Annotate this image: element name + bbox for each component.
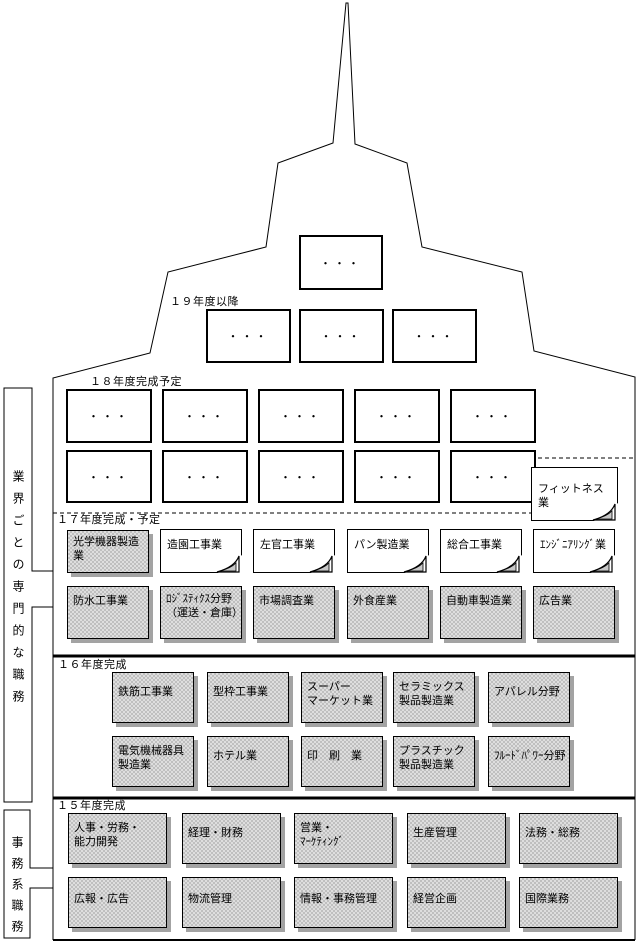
page-curl-icon <box>216 554 242 573</box>
box-label: 自動車製造業 <box>446 594 518 608</box>
placeholder-box-fy18-2: ・・・ <box>162 389 248 443</box>
placeholder-box-fy18-1: ・・・ <box>66 389 152 443</box>
placeholder-box-fy18-3: ・・・ <box>258 389 344 443</box>
placeholder-dots: ・・・ <box>228 328 270 344</box>
box-engineering: ｴﾝｼﾞﾆｱﾘﾝｸﾞ業 <box>533 529 615 573</box>
box-legal-general-affairs: 法務・総務 <box>519 813 618 864</box>
box-label: セラミックス 製品製造業 <box>399 680 471 708</box>
bracket-clerical-label: 事務系職務 <box>10 836 24 941</box>
placeholder-dots: ・・・ <box>88 469 130 485</box>
box-info-office-management: 情報・事務管理 <box>294 877 393 928</box>
box-waterproofing-construction: 防水工事業 <box>67 586 149 639</box>
box-label: 鉄筋工事業 <box>118 685 190 699</box>
box-general-construction: 総合工事業 <box>440 529 522 573</box>
box-label: 営業・ ﾏｰｹﾃｨﾝｸﾞ <box>300 821 389 849</box>
placeholder-box-fy18-9: ・・・ <box>354 450 440 503</box>
box-label: 防水工事業 <box>73 594 145 608</box>
box-plastering-construction: 左官工事業 <box>253 529 335 573</box>
box-ceramics-products-mfg: セラミックス 製品製造業 <box>393 672 475 723</box>
placeholder-box-fy19-top: ・・・ <box>299 235 383 290</box>
box-label: 情報・事務管理 <box>300 892 389 906</box>
box-label: 経営企画 <box>413 892 502 906</box>
placeholder-box-fy19-2: ・・・ <box>299 309 384 363</box>
box-label: 市場調査業 <box>259 594 331 608</box>
placeholder-dots: ・・・ <box>184 408 226 424</box>
section-label-fy15: １５年度完成 <box>57 800 126 812</box>
section-label-fy17: １７年度完成・予定 <box>57 514 161 526</box>
box-food-service: 外食産業 <box>347 586 429 639</box>
box-label: ホテル業 <box>213 749 285 763</box>
box-label: 外食産業 <box>353 594 425 608</box>
box-label: 左官工事業 <box>260 538 331 552</box>
box-fluid-power-field: ﾌﾙｰﾄﾞﾊﾟﾜｰ分野 <box>488 736 570 787</box>
page-curl-icon <box>592 502 618 521</box>
box-international-business: 国際業務 <box>519 877 618 928</box>
box-landscaping-construction: 造園工事業 <box>160 529 242 573</box>
box-label: 造園工事業 <box>167 538 238 552</box>
box-label: 国際業務 <box>525 892 614 906</box>
box-label: プラスチック 製品製造業 <box>399 744 471 772</box>
box-label: 総合工事業 <box>447 538 518 552</box>
box-label: 電気機械器具 製造業 <box>118 744 190 772</box>
box-label: ﾌﾙｰﾄﾞﾊﾟﾜｰ分野 <box>494 749 566 763</box>
bracket-industry-label: 業界ごとの専門的な職務 <box>11 470 25 712</box>
page-curl-icon <box>403 554 429 573</box>
box-automobile-mfg: 自動車製造業 <box>440 586 522 639</box>
box-label: 広告業 <box>539 594 611 608</box>
box-supermarket: スーパー マーケット業 <box>301 672 383 723</box>
placeholder-dots: ・・・ <box>414 328 456 344</box>
box-hr-labor-development: 人事・労務・ 能力開発 <box>68 813 167 864</box>
placeholder-dots: ・・・ <box>320 255 362 271</box>
placeholder-dots: ・・・ <box>280 469 322 485</box>
box-label: 型枠工事業 <box>213 685 285 699</box>
box-logistics-management: 物流管理 <box>182 877 281 928</box>
box-rebar-construction: 鉄筋工事業 <box>112 672 194 723</box>
box-label: スーパー マーケット業 <box>307 680 379 708</box>
placeholder-dots: ・・・ <box>376 408 418 424</box>
box-logistics-field: ﾛｼﾞｽﾃｨｸｽ分野 （運送・倉庫） <box>160 586 242 639</box>
box-production-management: 生産管理 <box>407 813 506 864</box>
placeholder-box-fy18-6: ・・・ <box>66 450 152 503</box>
box-label: 経理・財務 <box>188 826 277 840</box>
placeholder-dots: ・・・ <box>184 469 226 485</box>
placeholder-box-fy18-4: ・・・ <box>354 389 440 443</box>
placeholder-dots: ・・・ <box>88 408 130 424</box>
box-label: 印 刷 業 <box>307 749 379 763</box>
box-label: パン製造業 <box>354 538 425 552</box>
box-sales-marketing: 営業・ ﾏｰｹﾃｨﾝｸﾞ <box>294 813 393 864</box>
box-optical-equipment-mfg: 光学機器製造 業 <box>67 530 149 573</box>
box-pr-advertising: 広報・広告 <box>68 877 167 928</box>
box-label: 人事・労務・ 能力開発 <box>74 821 163 849</box>
placeholder-box-fy18-10: ・・・ <box>450 450 536 503</box>
placeholder-dots: ・・・ <box>321 328 363 344</box>
box-formwork-construction: 型枠工事業 <box>207 672 289 723</box>
box-printing: 印 刷 業 <box>301 736 383 787</box>
page-curl-icon <box>309 554 335 573</box>
placeholder-dots: ・・・ <box>280 408 322 424</box>
placeholder-dots: ・・・ <box>376 469 418 485</box>
page-curl-icon <box>496 554 522 573</box>
box-plastic-products-mfg: プラスチック 製品製造業 <box>393 736 475 787</box>
box-label: 物流管理 <box>188 892 277 906</box>
box-label: 法務・総務 <box>525 826 614 840</box>
box-label: アパレル分野 <box>494 685 566 699</box>
placeholder-dots: ・・・ <box>472 408 514 424</box>
box-label: 広報・広告 <box>74 892 163 906</box>
box-apparel-field: アパレル分野 <box>488 672 570 723</box>
box-advertising: 広告業 <box>533 586 615 639</box>
section-label-fy18: １８年度完成予定 <box>90 376 182 388</box>
box-fitness-industry: フィットネス業 <box>531 467 618 521</box>
placeholder-box-fy18-7: ・・・ <box>162 450 248 503</box>
box-bread-mfg: パン製造業 <box>347 529 429 573</box>
box-label: ﾛｼﾞｽﾃｨｸｽ分野 （運送・倉庫） <box>166 592 238 620</box>
placeholder-dots: ・・・ <box>472 469 514 485</box>
box-hotel: ホテル業 <box>207 736 289 787</box>
box-electrical-machinery-mfg: 電気機械器具 製造業 <box>112 736 194 787</box>
box-corporate-planning: 経営企画 <box>407 877 506 928</box>
box-label: 生産管理 <box>413 826 502 840</box>
section-label-fy19: １９年度以降 <box>170 296 239 308</box>
pyramid-diagram: 業界ごとの専門的な職務 事務系職務 １９年度以降 ・・・ ・・・ ・・・ ・・・… <box>0 0 639 944</box>
placeholder-box-fy19-1: ・・・ <box>206 309 291 363</box>
box-accounting-finance: 経理・財務 <box>182 813 281 864</box>
placeholder-box-fy18-8: ・・・ <box>258 450 344 503</box>
placeholder-box-fy19-3: ・・・ <box>392 309 477 363</box>
placeholder-box-fy18-5: ・・・ <box>450 389 536 443</box>
box-market-research: 市場調査業 <box>253 586 335 639</box>
page-curl-icon <box>589 554 615 573</box>
box-label: 光学機器製造 業 <box>73 535 145 563</box>
box-label: ｴﾝｼﾞﾆｱﾘﾝｸﾞ業 <box>540 538 611 552</box>
section-label-fy16: １６年度完成 <box>58 659 127 671</box>
